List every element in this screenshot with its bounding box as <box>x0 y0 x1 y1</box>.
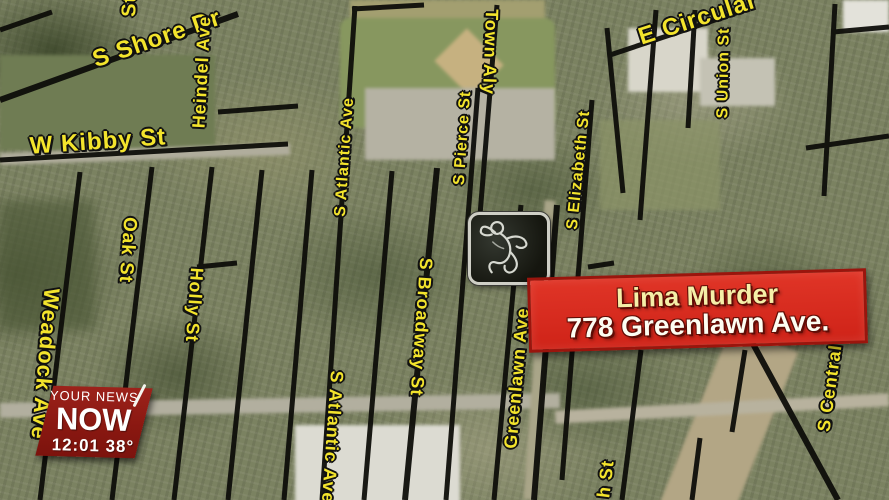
news-map-graphic: StS Shore DrHeindel AveW Kibby StOak StH… <box>0 0 889 500</box>
station-bug-inner: YOUR NEWS NOW 12:01 38° <box>49 389 139 456</box>
street-label: S Central <box>813 343 846 433</box>
street-label: S Atlantic Ave <box>317 370 347 500</box>
station-bug: YOUR NEWS NOW 12:01 38° <box>35 386 152 459</box>
clock-time: 12:01 <box>52 435 101 455</box>
street-label: S Atlantic Ave <box>332 97 358 218</box>
street-label: W Kibby St <box>29 123 167 160</box>
street-label: S Broadway St <box>406 257 437 397</box>
street-label: h St <box>593 459 618 499</box>
street-label: S Elizabeth St <box>564 109 594 230</box>
callout-address: 778 Greenlawn Ave. <box>566 306 829 343</box>
body-outline-icon <box>471 215 547 282</box>
street-label: E Circular <box>635 0 761 51</box>
temperature: 38° <box>106 436 135 456</box>
location-callout: Lima Murder 778 Greenlawn Ave. <box>527 268 868 352</box>
time-temperature-row: 12:01 38° <box>49 436 138 455</box>
street-label: St <box>118 0 142 17</box>
station-brand-line2: NOW <box>49 403 138 437</box>
body-outline-marker <box>468 212 550 285</box>
street-label: Town Aly <box>478 9 502 96</box>
street-label: S Union St <box>714 27 734 118</box>
street-label: Oak St <box>114 216 141 284</box>
street-label: Holly St <box>181 267 207 343</box>
street-label: S Pierce St <box>451 90 476 186</box>
street-label: Heindel Ave <box>189 15 216 129</box>
